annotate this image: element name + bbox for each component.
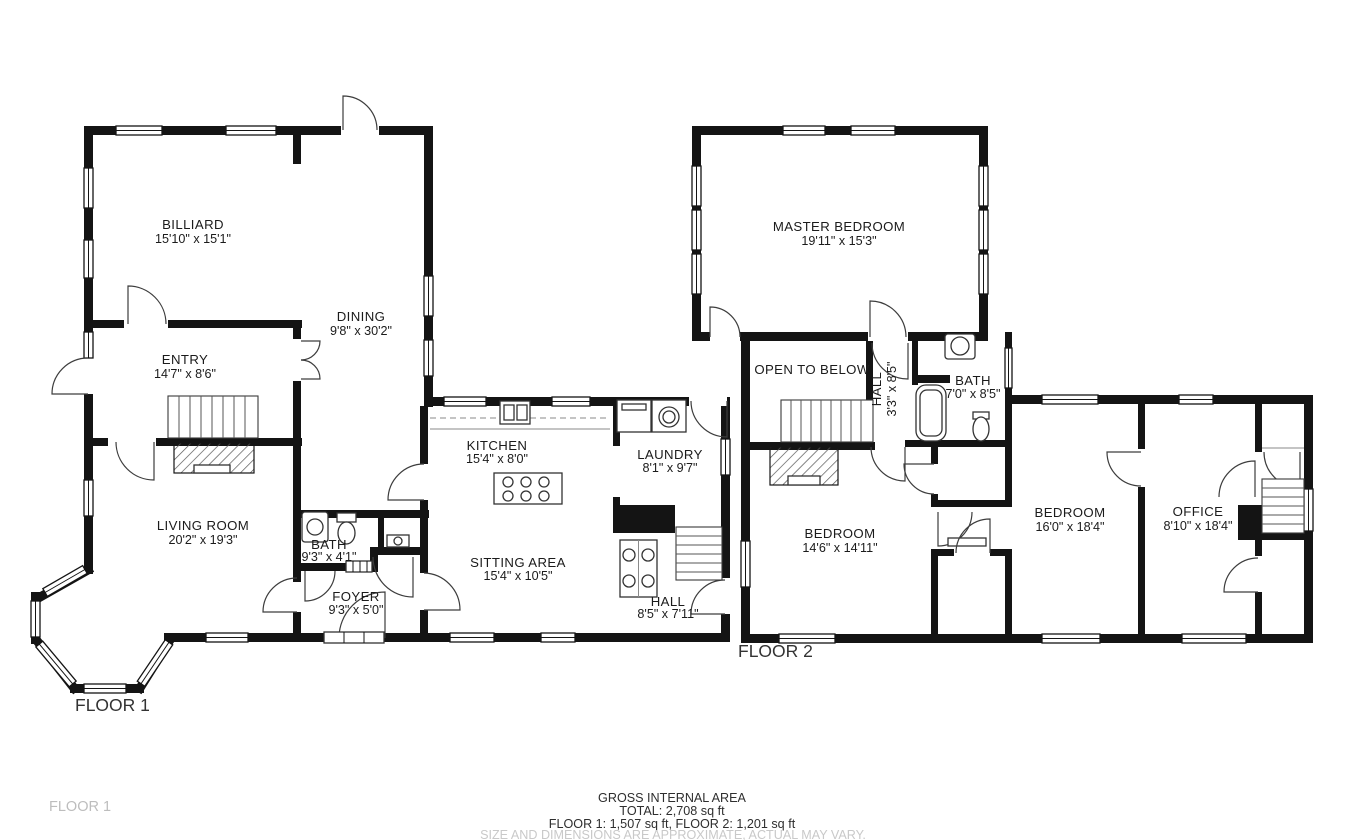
room-label-bedroom1: BEDROOM xyxy=(805,526,876,541)
room-label-office: OFFICE xyxy=(1173,504,1224,519)
room-label-laundry: LAUNDRY xyxy=(637,447,703,462)
room-dims-bedroom1: 14'6" x 14'11" xyxy=(802,541,877,555)
room-label-bath2: BATH xyxy=(955,373,991,388)
room-dims-laundry: 8'1" x 9'7" xyxy=(642,461,697,475)
footer: GROSS INTERNAL AREA TOTAL: 2,708 sq ft F… xyxy=(480,791,866,840)
chimney-hatched xyxy=(770,447,838,485)
footer-disclaimer: SIZE AND DIMENSIONS ARE APPROXIMATE, ACT… xyxy=(480,828,866,840)
room-label-dining: DINING xyxy=(337,309,386,324)
room-dims-bath1: 9'3" x 4'1" xyxy=(301,550,356,564)
floor2-label: FLOOR 2 xyxy=(738,641,813,661)
floor2-windows xyxy=(692,126,1313,643)
staircase-open-to-below xyxy=(781,400,873,442)
room-dims-kitchen: 15'4" x 8'0" xyxy=(466,452,528,466)
room-label-living-room: LIVING ROOM xyxy=(157,518,249,533)
kitchen-range xyxy=(494,473,562,504)
room-label-foyer: FOYER xyxy=(332,589,379,604)
powder-sink xyxy=(387,535,409,547)
floor1-plan: BILLIARD 15'10" x 15'1" ENTRY 14'7" x 8'… xyxy=(31,96,730,715)
room-dims-sitting-area: 15'4" x 10'5" xyxy=(483,569,552,583)
room-label-master-bedroom: MASTER BEDROOM xyxy=(773,219,905,234)
room-dims-dining: 9'8" x 30'2" xyxy=(330,324,392,338)
floor1-label: FLOOR 1 xyxy=(75,695,150,715)
fireplace xyxy=(174,443,254,473)
washer xyxy=(652,400,686,432)
room-dims-bedroom2: 16'0" x 18'4" xyxy=(1035,520,1104,534)
footer-total: TOTAL: 2,708 sq ft xyxy=(619,804,725,818)
room-dims-living-room: 20'2" x 19'3" xyxy=(168,533,237,547)
bath2-sink xyxy=(945,334,975,359)
room-dims-hall1: 8'5" x 7'11" xyxy=(637,607,698,621)
passage-door-slab xyxy=(948,538,986,546)
dryer xyxy=(617,400,651,432)
room-dims-entry: 14'7" x 8'6" xyxy=(154,367,216,381)
room-dims-hall2: 3'3" x 8'5" xyxy=(885,361,899,416)
room-dims-bath2: 7'0" x 8'5" xyxy=(945,387,1000,401)
chimney-solid xyxy=(1238,505,1262,533)
room-label-hall2: HALL xyxy=(869,372,884,407)
staircase-right-wing xyxy=(1262,479,1304,533)
room-label-bedroom2: BEDROOM xyxy=(1035,505,1106,520)
room-label-entry: ENTRY xyxy=(162,352,208,367)
room-dims-office: 8'10" x 18'4" xyxy=(1163,519,1232,533)
bath2-toilet xyxy=(973,412,989,441)
island-cooktop xyxy=(620,540,657,597)
room-label-kitchen: KITCHEN xyxy=(467,438,528,453)
room-label-open-to-below: OPEN TO BELOW xyxy=(754,362,870,377)
floor2-plan: MASTER BEDROOM 19'11" x 15'3" OPEN TO BE… xyxy=(692,126,1313,661)
footer-title: GROSS INTERNAL AREA xyxy=(598,791,746,805)
room-label-billiard: BILLIARD xyxy=(162,217,224,232)
floorplan-canvas: BILLIARD 15'10" x 15'1" ENTRY 14'7" x 8'… xyxy=(0,0,1345,840)
staircase-hall xyxy=(676,527,722,580)
staircase-entry xyxy=(168,396,258,438)
watermark-floor1: FLOOR 1 xyxy=(49,799,111,815)
bathtub xyxy=(916,385,946,441)
floorplan-page: BILLIARD 15'10" x 15'1" ENTRY 14'7" x 8'… xyxy=(0,0,1345,840)
room-dims-master-bedroom: 19'11" x 15'3" xyxy=(801,234,876,248)
room-label-sitting-area: SITTING AREA xyxy=(470,555,566,570)
floor2-walls xyxy=(692,126,1313,643)
room-dims-foyer: 9'3" x 5'0" xyxy=(328,603,383,617)
room-dims-billiard: 15'10" x 15'1" xyxy=(155,232,231,246)
